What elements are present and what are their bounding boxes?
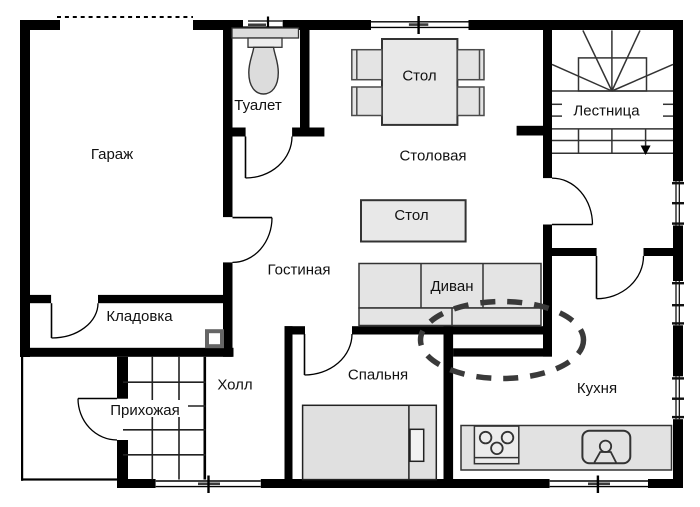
- svg-text:Туалет: Туалет: [234, 97, 282, 114]
- svg-text:Гостиная: Гостиная: [268, 262, 331, 279]
- svg-text:Гараж: Гараж: [91, 146, 133, 163]
- svg-text:Диван: Диван: [431, 278, 474, 295]
- svg-text:Стол: Стол: [402, 67, 436, 84]
- svg-text:Спальня: Спальня: [348, 367, 408, 384]
- svg-text:Прихожая: Прихожая: [110, 402, 180, 419]
- svg-text:Холл: Холл: [217, 377, 252, 394]
- svg-text:Стол: Стол: [394, 207, 428, 224]
- svg-text:Столовая: Столовая: [399, 148, 466, 165]
- svg-text:Лестница: Лестница: [573, 102, 640, 119]
- svg-text:Кухня: Кухня: [577, 380, 617, 397]
- svg-text:Кладовка: Кладовка: [106, 308, 173, 325]
